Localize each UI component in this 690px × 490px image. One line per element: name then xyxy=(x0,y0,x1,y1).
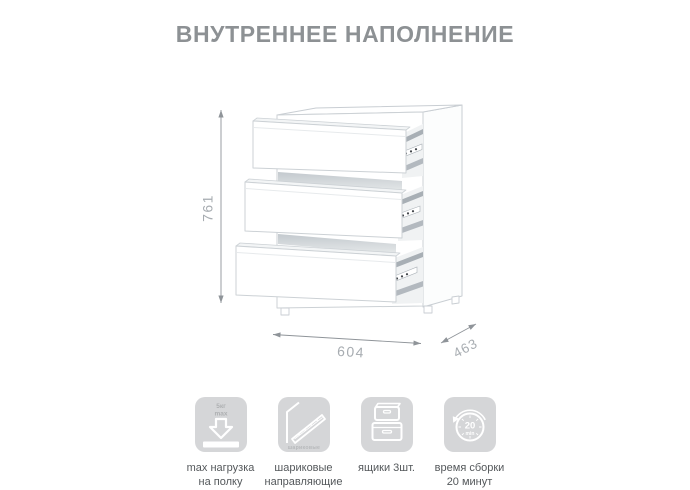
page-title: ВНУТРЕННЕЕ НАПОЛНЕНИЕ xyxy=(0,23,690,46)
cabinet-foot-front-left xyxy=(281,308,289,315)
cabinet-foot-back-right xyxy=(452,296,459,304)
dimension-height: 761 xyxy=(200,110,221,303)
ball-bearing-slides-icon: шариковые xyxy=(278,397,330,452)
features-row: 5кг max max нагрузка на полку xyxy=(0,397,690,490)
svg-text:5кг: 5кг xyxy=(216,403,226,410)
feature-caption: время сборки 20 минут xyxy=(435,461,505,490)
svg-text:шариковые: шариковые xyxy=(287,445,319,451)
depth-dimension-label: 463 xyxy=(451,336,481,361)
feature-caption: ящики 3шт. xyxy=(358,461,415,489)
max-load-icon: 5кг max xyxy=(195,397,247,452)
feature-drawer-count: ящики 3шт. xyxy=(345,397,428,490)
infographic-canvas: ВНУТРЕННЕЕ НАПОЛНЕНИЕ xyxy=(0,0,690,490)
dimension-width: 604 xyxy=(273,335,421,361)
cabinet-side-panel xyxy=(423,105,462,307)
drawers xyxy=(236,118,410,302)
height-dimension-label: 761 xyxy=(200,194,216,222)
drawer-top xyxy=(253,118,410,173)
cabinet-foot-front-right xyxy=(424,306,432,313)
width-dimension-label: 604 xyxy=(337,343,366,361)
drawer-bottom xyxy=(236,243,400,302)
drawers-icon xyxy=(361,397,413,452)
feature-caption: max нагрузка на полку xyxy=(187,461,255,490)
dimension-depth: 463 xyxy=(441,324,480,361)
product-figure: 761 604 463 xyxy=(185,85,500,370)
feature-max-load: 5кг max max нагрузка на полку xyxy=(179,397,262,490)
feature-caption: шариковые направляющие xyxy=(265,461,343,490)
feature-assembly-time: 20 min время сборки 20 минут xyxy=(428,397,511,490)
svg-text:max: max xyxy=(214,411,227,418)
svg-text:20: 20 xyxy=(464,421,475,432)
chest-of-drawers-drawing: 761 604 463 xyxy=(185,85,500,370)
svg-text:min: min xyxy=(465,431,474,437)
feature-ball-guides: шариковые шариковые направляющие xyxy=(262,397,345,490)
assembly-time-icon: 20 min xyxy=(444,397,496,452)
